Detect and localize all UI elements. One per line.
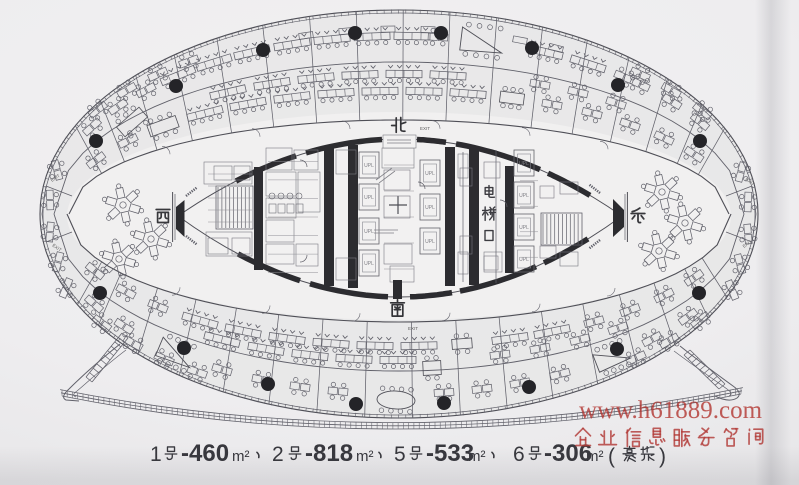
svg-text:UPL: UPL xyxy=(364,195,374,201)
svg-text:m²: m² xyxy=(468,448,486,465)
svg-text:UPL: UPL xyxy=(425,205,435,211)
svg-text:2: 2 xyxy=(272,443,284,466)
svg-text:EXIT: EXIT xyxy=(420,126,430,131)
svg-text:1: 1 xyxy=(150,443,162,466)
svg-text:UPL: UPL xyxy=(425,171,435,177)
svg-text:5: 5 xyxy=(394,443,406,466)
svg-text:EXIT: EXIT xyxy=(408,326,418,331)
svg-text:UPL: UPL xyxy=(364,261,374,267)
svg-text:UPL: UPL xyxy=(519,257,529,263)
svg-text:(: ( xyxy=(608,445,615,468)
svg-text:-818: -818 xyxy=(305,440,353,467)
svg-text:-460: -460 xyxy=(181,440,229,467)
svg-text:): ) xyxy=(659,445,666,468)
svg-text:UPL: UPL xyxy=(519,193,529,199)
svg-text:m²: m² xyxy=(356,448,374,465)
svg-text:UPL: UPL xyxy=(364,229,374,235)
svg-text:UPL: UPL xyxy=(425,239,435,245)
svg-text:UPL: UPL xyxy=(519,225,529,231)
svg-text:6: 6 xyxy=(513,443,525,466)
svg-text:UPL: UPL xyxy=(519,161,529,167)
svg-text:m²: m² xyxy=(586,448,604,465)
svg-text:m²: m² xyxy=(232,448,250,465)
svg-text:UPL: UPL xyxy=(364,163,374,169)
svg-text:-533: -533 xyxy=(426,440,474,467)
